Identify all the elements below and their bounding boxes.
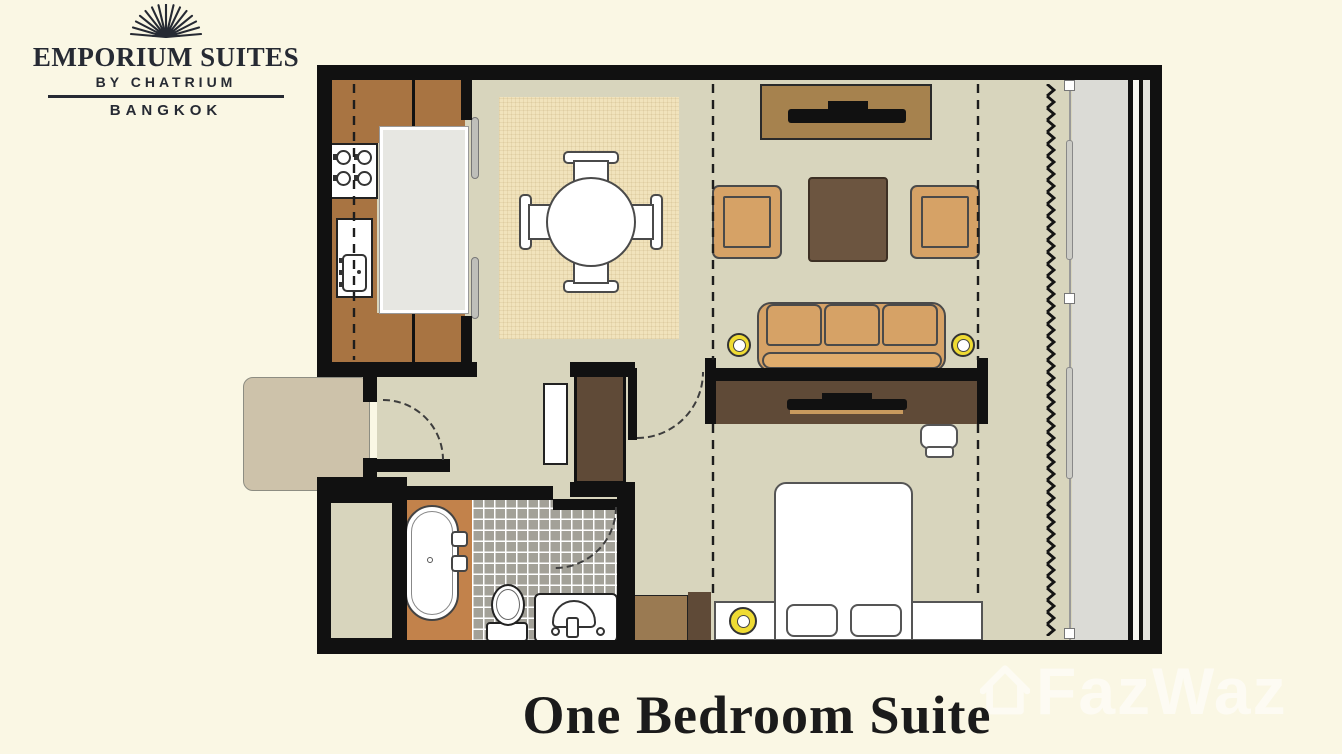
plan-title: One Bedroom Suite xyxy=(172,684,1342,746)
coffee-table xyxy=(808,177,888,262)
sofa-cushion xyxy=(824,304,880,346)
faucet-handle xyxy=(339,282,344,287)
toilet-seat xyxy=(496,589,520,620)
round-dining-table xyxy=(546,177,636,267)
pocket-door-panel xyxy=(471,117,479,179)
niche-interior xyxy=(331,503,392,638)
window-node xyxy=(1064,293,1075,304)
wardrobe xyxy=(574,366,626,484)
wall xyxy=(705,358,716,424)
wall-wardrobe-top xyxy=(570,362,635,377)
wall-entry-stub xyxy=(363,362,377,402)
kitchen-counter-bottom xyxy=(332,313,465,362)
wall-stub xyxy=(461,316,472,368)
closet-dark-section xyxy=(688,592,711,642)
counter-seam xyxy=(412,313,415,362)
entry-mat xyxy=(243,377,370,491)
faucet-handle xyxy=(339,270,344,275)
sliding-panel xyxy=(1066,367,1073,479)
wall-stub xyxy=(461,67,472,120)
faucet-handle xyxy=(339,258,344,263)
wall-kitchen-bottom xyxy=(317,362,477,377)
vanity-knob xyxy=(551,627,560,636)
window-glass xyxy=(1072,80,1128,640)
pillow xyxy=(850,604,902,637)
burner xyxy=(357,171,372,186)
armchair xyxy=(910,185,980,259)
brand-logo: EMPORIUM SUITES BY CHATRIUM BANGKOK xyxy=(18,4,314,119)
wall xyxy=(977,358,988,424)
closet xyxy=(632,595,688,642)
burner-knob xyxy=(354,154,359,160)
door-leaf-bathroom xyxy=(553,499,617,510)
sunburst-icon xyxy=(100,4,232,38)
burner-knob xyxy=(354,175,359,181)
window-sill xyxy=(1143,80,1150,640)
wall-bottom xyxy=(317,640,1162,654)
floor-plan-page: EMPORIUM SUITES BY CHATRIUM BANGKOK xyxy=(0,0,1342,754)
kitchen-island xyxy=(380,127,468,313)
sliding-panel xyxy=(1066,140,1073,260)
wall-right xyxy=(1150,65,1162,654)
wall xyxy=(716,368,977,381)
logo-divider xyxy=(48,95,284,98)
window-node xyxy=(1064,628,1075,639)
brand-name: EMPORIUM SUITES xyxy=(18,43,314,71)
wall-left xyxy=(317,65,332,377)
burner xyxy=(357,150,372,165)
door-leaf-hall xyxy=(628,368,637,440)
door-leaf-entry xyxy=(377,459,450,472)
bedside-lamp xyxy=(729,607,757,635)
flat-tv xyxy=(788,109,906,123)
kitchen-sink xyxy=(342,254,367,292)
wall-bathroom-right xyxy=(617,486,635,653)
tub-faucet xyxy=(451,555,468,572)
vanity-spout xyxy=(566,617,579,638)
pillow xyxy=(786,604,838,637)
flat-tv xyxy=(787,399,907,410)
burner-knob xyxy=(333,175,338,181)
desk-chair-base xyxy=(925,446,954,458)
armchair xyxy=(712,185,782,259)
wall-wardrobe-bottom xyxy=(570,482,635,497)
sofa-cushion xyxy=(766,304,822,346)
sink-drain xyxy=(357,270,361,274)
wall-top xyxy=(317,65,1162,80)
brand-byline: BY CHATRIUM xyxy=(18,74,314,90)
bathtub-inner xyxy=(411,511,453,615)
burner-knob xyxy=(333,154,338,160)
window-frame-line xyxy=(1128,80,1133,640)
vanity-knob xyxy=(596,627,605,636)
window-node xyxy=(1064,80,1075,91)
brand-city: BANGKOK xyxy=(18,102,314,119)
sofa-cushion xyxy=(882,304,938,346)
sofa-seat-front xyxy=(762,352,942,369)
wall-lamp xyxy=(727,333,751,357)
mirror-cabinet xyxy=(543,383,568,465)
wall-lamp xyxy=(951,333,975,357)
pocket-door-panel xyxy=(471,257,479,319)
tub-drain xyxy=(427,557,433,563)
wall-bathroom-top xyxy=(407,486,553,500)
console-shelf xyxy=(790,410,903,414)
tub-faucet xyxy=(451,531,468,547)
burner xyxy=(336,171,351,186)
burner xyxy=(336,150,351,165)
